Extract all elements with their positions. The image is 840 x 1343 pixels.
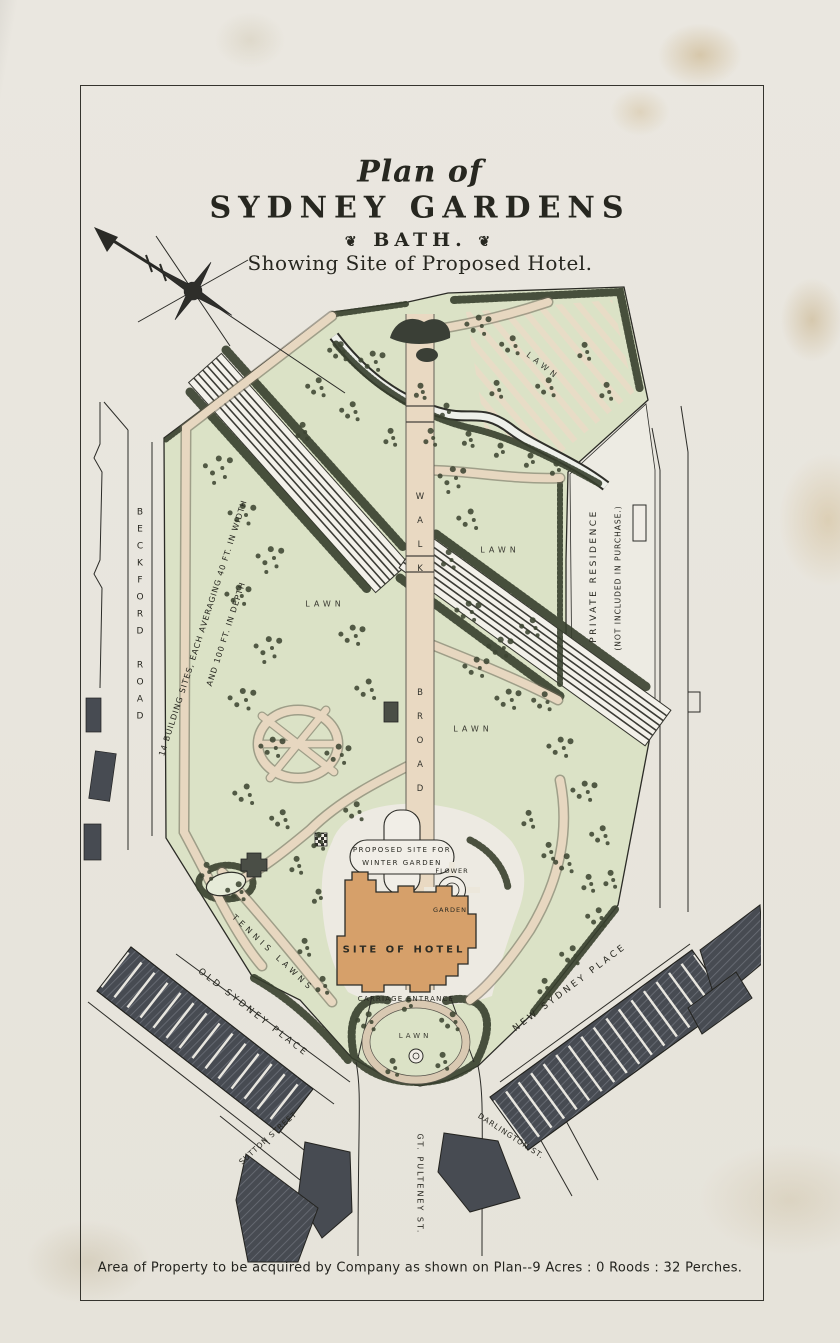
label-private-residence-line2: (NOT INCLUDED IN PURCHASE.): [614, 505, 623, 650]
label-garden: GARDEN: [433, 906, 467, 914]
walkside-building: [384, 702, 398, 722]
left-edge-buildings: [84, 698, 116, 860]
sydney-road-lines: [652, 406, 700, 912]
private-residence-outbuilding: [633, 505, 646, 541]
label-site-of-hotel: SITE OF HOTEL: [343, 945, 466, 956]
plan-title-line2: SYDNEY GARDENS: [209, 191, 630, 226]
label-private-residence-line1: PRIVATE RESIDENCE: [589, 509, 599, 643]
label-winter-garden-line2: WINTER GARDEN: [362, 859, 442, 867]
label-broad-walk-word2: WALK: [415, 492, 425, 588]
title-ornament-left: ❦: [345, 234, 362, 250]
plan-title-line1: Plan of: [357, 155, 483, 190]
label-winter-garden-line1: PROPOSED SITE FOR: [353, 846, 451, 854]
label-lawn-mid-right: LAWN: [480, 546, 520, 555]
label-gt-pulteney-st: GT. PULTENEY ST.: [416, 1134, 425, 1235]
label-broad-walk-word1: BROAD: [415, 688, 425, 808]
label-lawn-lower-right: LAWN: [453, 725, 493, 734]
label-lawn-entrance: LAWN: [399, 1032, 432, 1040]
label-carriage-entrance: CARRIAGE ENTRANCE: [358, 995, 454, 1003]
title-ornament-right: ❦: [478, 234, 495, 250]
title-bath-text: BATH.: [373, 229, 466, 251]
plan-title-line4: Showing Site of Proposed Hotel.: [247, 251, 592, 275]
scanned-plan-page: Plan of SYDNEY GARDENS ❦ BATH. ❦ Showing…: [0, 0, 840, 1343]
label-lawn-mid-left: LAWN: [305, 600, 345, 609]
label-flower: FLOWER: [435, 867, 468, 875]
label-beckford-road: BECKFORD ROAD: [135, 508, 145, 729]
plan-title-line3: ❦ BATH. ❦: [345, 229, 495, 251]
footer-caption: Area of Property to be acquired by Compa…: [98, 1261, 742, 1276]
